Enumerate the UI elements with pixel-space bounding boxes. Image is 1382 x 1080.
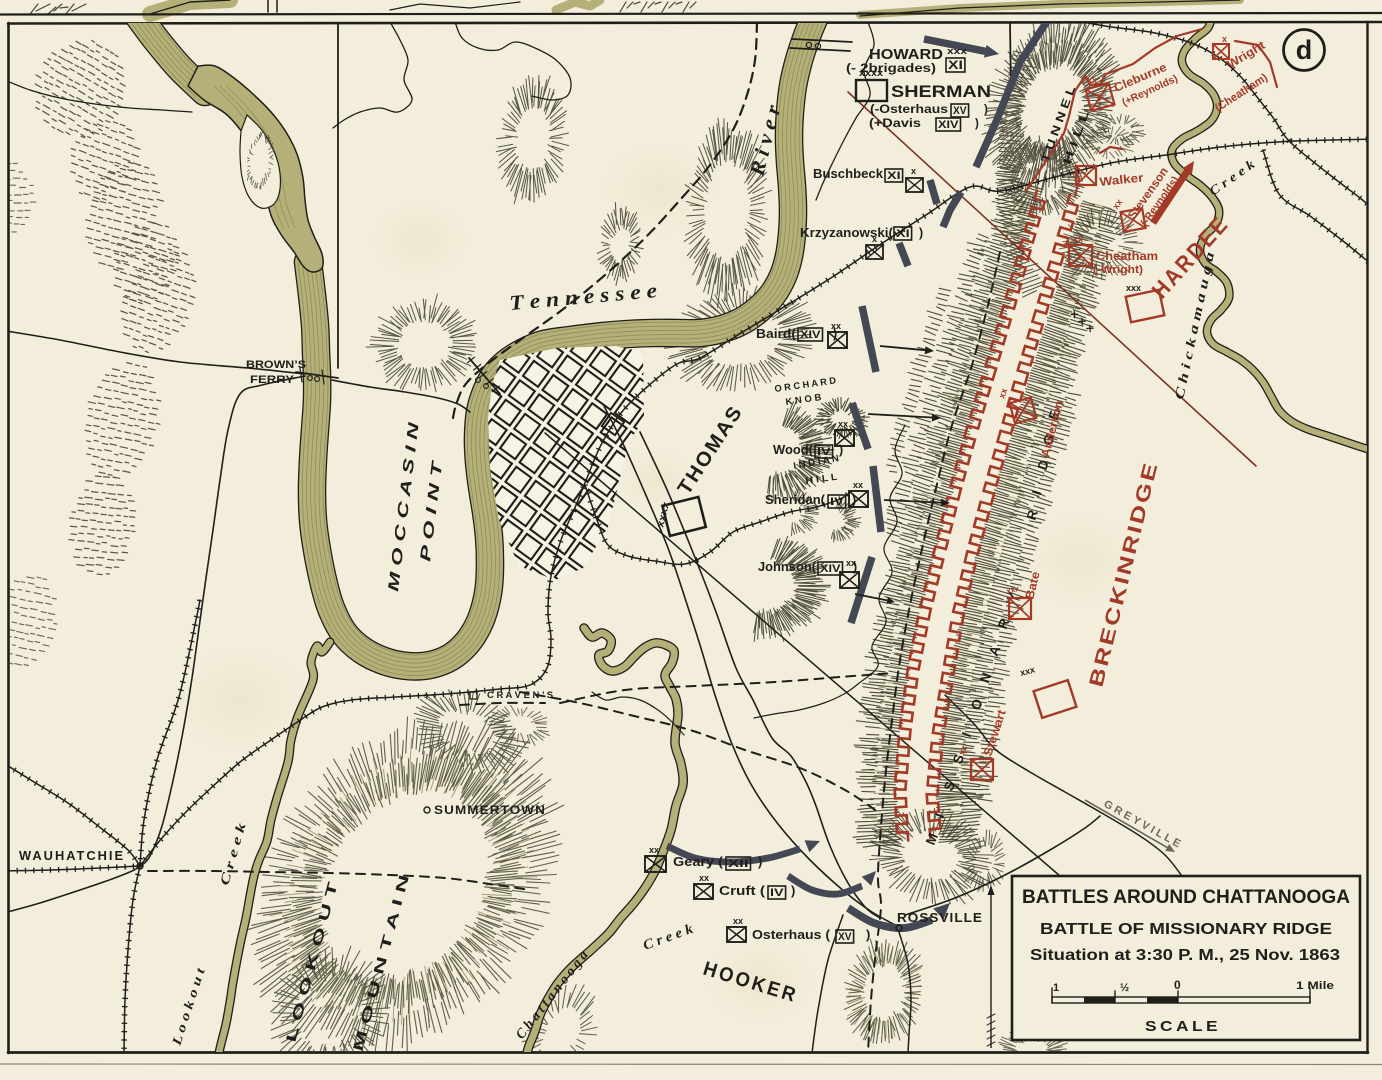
svg-text:Geary (: Geary ( — [673, 854, 724, 869]
svg-text:BATTLES AROUND CHATTANOOGA: BATTLES AROUND CHATTANOOGA — [1022, 886, 1350, 908]
svg-text:0: 0 — [1174, 978, 1181, 992]
svg-text:Situation at 3:30 P. M., 25 No: Situation at 3:30 P. M., 25 Nov. 1863 — [1030, 947, 1340, 964]
svg-text:x: x — [911, 166, 916, 176]
svg-text:Sheridan(: Sheridan( — [765, 493, 826, 507]
svg-text:BATTLE OF MISSIONARY RIDGE: BATTLE OF MISSIONARY RIDGE — [1040, 921, 1332, 938]
svg-text:(-Osterhaus: (-Osterhaus — [870, 104, 948, 116]
svg-text:xx: xx — [838, 419, 848, 429]
svg-text:xx: xx — [733, 916, 743, 926]
svg-text:): ) — [975, 118, 979, 130]
svg-text:Wood(: Wood( — [773, 443, 814, 457]
svg-text:1: 1 — [1053, 982, 1059, 994]
svg-text:xx: xx — [699, 873, 709, 883]
svg-text:SUMMERTOWN: SUMMERTOWN — [434, 803, 546, 817]
svg-text:ROSSVILLE: ROSSVILLE — [897, 910, 983, 925]
svg-text:): ) — [866, 927, 870, 942]
svg-text:): ) — [791, 883, 795, 898]
svg-text:SHERMAN: SHERMAN — [891, 82, 991, 101]
svg-text:Buschbeck: Buschbeck — [813, 167, 883, 181]
svg-text:FERRY: FERRY — [250, 374, 295, 386]
svg-text:SCALE: SCALE — [1145, 1018, 1221, 1035]
svg-text:): ) — [984, 104, 988, 116]
svg-text:): ) — [758, 854, 762, 869]
svg-text:): ) — [919, 226, 923, 240]
svg-text:Osterhaus (: Osterhaus ( — [752, 927, 831, 942]
svg-text:xxxx: xxxx — [859, 68, 884, 79]
svg-text:xx: xx — [1073, 234, 1083, 244]
svg-text:WAUHATCHIE: WAUHATCHIE — [19, 848, 125, 863]
svg-text:XI: XI — [887, 170, 901, 182]
svg-text:xx: xx — [853, 480, 863, 490]
svg-text:½: ½ — [1120, 982, 1129, 994]
svg-text:xxx: xxx — [1126, 283, 1141, 293]
svg-text:xx: xx — [846, 558, 856, 568]
svg-text:Johnson(: Johnson( — [758, 560, 817, 574]
svg-text:(-Wright): (-Wright) — [1093, 264, 1143, 276]
svg-text:1 Mile: 1 Mile — [1296, 980, 1334, 992]
svg-text:d: d — [1296, 35, 1313, 65]
svg-text:xxx: xxx — [947, 46, 967, 56]
svg-text:Baird(: Baird( — [756, 327, 797, 341]
svg-text:XIV: XIV — [820, 563, 841, 575]
svg-text:XIV: XIV — [938, 119, 959, 131]
svg-text:XII: XII — [728, 858, 749, 870]
svg-text:IV: IV — [770, 887, 784, 899]
svg-text:(+Davis: (+Davis — [869, 118, 921, 130]
svg-text:HOWARD: HOWARD — [869, 47, 943, 63]
svg-text:BROWN’S: BROWN’S — [246, 359, 306, 371]
svg-text:IV: IV — [830, 496, 844, 508]
svg-text:XI: XI — [896, 228, 910, 240]
svg-text:x: x — [1222, 34, 1227, 44]
svg-text:Cheatham: Cheatham — [1096, 249, 1158, 263]
svg-text:xx: xx — [649, 845, 659, 855]
svg-text:Krzyzanowski(: Krzyzanowski( — [800, 226, 894, 240]
svg-text:XI: XI — [948, 58, 963, 72]
svg-text:XIV: XIV — [800, 329, 821, 341]
svg-text:XV: XV — [838, 931, 852, 943]
svg-text:xx: xx — [831, 321, 841, 331]
svg-text:x: x — [872, 234, 877, 244]
svg-text:XV: XV — [953, 105, 967, 117]
svg-text:C R A V E N ’ S: C R A V E N ’ S — [487, 690, 553, 701]
svg-text:xx: xx — [1087, 75, 1097, 85]
svg-text:Cruft (: Cruft ( — [719, 883, 766, 898]
